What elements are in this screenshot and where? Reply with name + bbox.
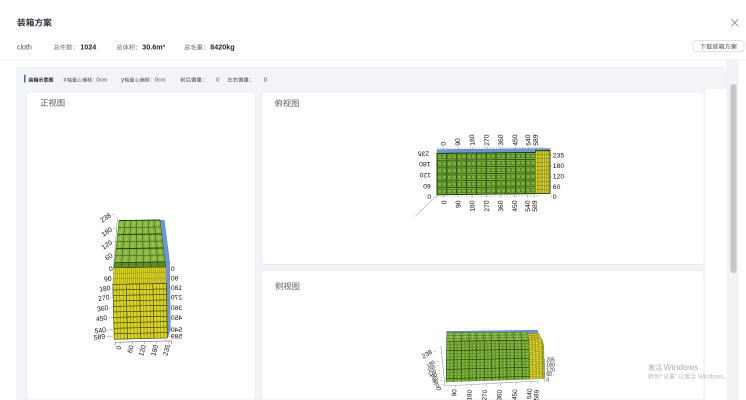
- svg-text:180: 180: [419, 160, 431, 167]
- svg-text:235: 235: [418, 150, 430, 157]
- svg-text:180: 180: [466, 389, 474, 400]
- svg-text:0cm: 0cm: [96, 77, 107, 83]
- svg-text:589: 589: [533, 389, 541, 400]
- svg-text:y: y: [121, 77, 124, 83]
- svg-text:60: 60: [553, 184, 561, 191]
- svg-text:450: 450: [511, 389, 519, 400]
- svg-text:90: 90: [455, 138, 462, 146]
- svg-text:90: 90: [104, 276, 113, 284]
- svg-text:360: 360: [498, 200, 506, 212]
- svg-text:0: 0: [171, 266, 175, 273]
- svg-text:270: 270: [484, 134, 492, 146]
- svg-text:270: 270: [171, 294, 183, 301]
- svg-text:1024: 1024: [80, 42, 96, 51]
- svg-text:0cm: 0cm: [155, 77, 166, 83]
- svg-text:450: 450: [171, 315, 183, 322]
- svg-text:0: 0: [216, 77, 219, 83]
- svg-text:x: x: [64, 77, 67, 83]
- svg-text:90: 90: [455, 200, 462, 208]
- svg-text:60: 60: [423, 182, 431, 189]
- svg-text:90: 90: [451, 389, 458, 397]
- svg-text:270: 270: [484, 200, 492, 212]
- svg-text:589: 589: [171, 333, 183, 340]
- svg-text:180: 180: [469, 134, 477, 146]
- svg-text:120: 120: [419, 171, 431, 178]
- svg-text:0: 0: [440, 142, 447, 146]
- svg-text:”: ”: [675, 375, 677, 381]
- svg-text:cloth: cloth: [17, 44, 32, 51]
- svg-text:540: 540: [525, 134, 533, 146]
- svg-text:“: “: [660, 375, 662, 381]
- svg-text:589: 589: [532, 200, 540, 212]
- svg-text:120: 120: [553, 174, 565, 181]
- svg-text:450: 450: [512, 134, 520, 146]
- svg-text:0: 0: [441, 200, 448, 204]
- svg-text:360: 360: [496, 389, 504, 400]
- svg-text:Windows: Windows: [698, 374, 723, 381]
- svg-text:30.6m³: 30.6m³: [142, 42, 165, 51]
- svg-text:0: 0: [264, 77, 267, 83]
- svg-text:450: 450: [512, 200, 520, 212]
- svg-text:360: 360: [171, 305, 183, 312]
- svg-text:235: 235: [553, 153, 565, 160]
- svg-text:0: 0: [427, 193, 431, 200]
- svg-text:180: 180: [469, 200, 477, 212]
- svg-text:Windows: Windows: [664, 362, 699, 372]
- svg-text:8420kg: 8420kg: [210, 42, 234, 51]
- svg-text:180: 180: [553, 163, 565, 170]
- svg-text:180: 180: [171, 285, 183, 292]
- svg-text:0: 0: [553, 194, 557, 201]
- svg-text:90: 90: [171, 276, 179, 283]
- svg-text:589: 589: [533, 134, 541, 146]
- svg-text:360: 360: [498, 134, 506, 146]
- svg-text:270: 270: [481, 389, 489, 400]
- svg-text:0: 0: [546, 377, 549, 383]
